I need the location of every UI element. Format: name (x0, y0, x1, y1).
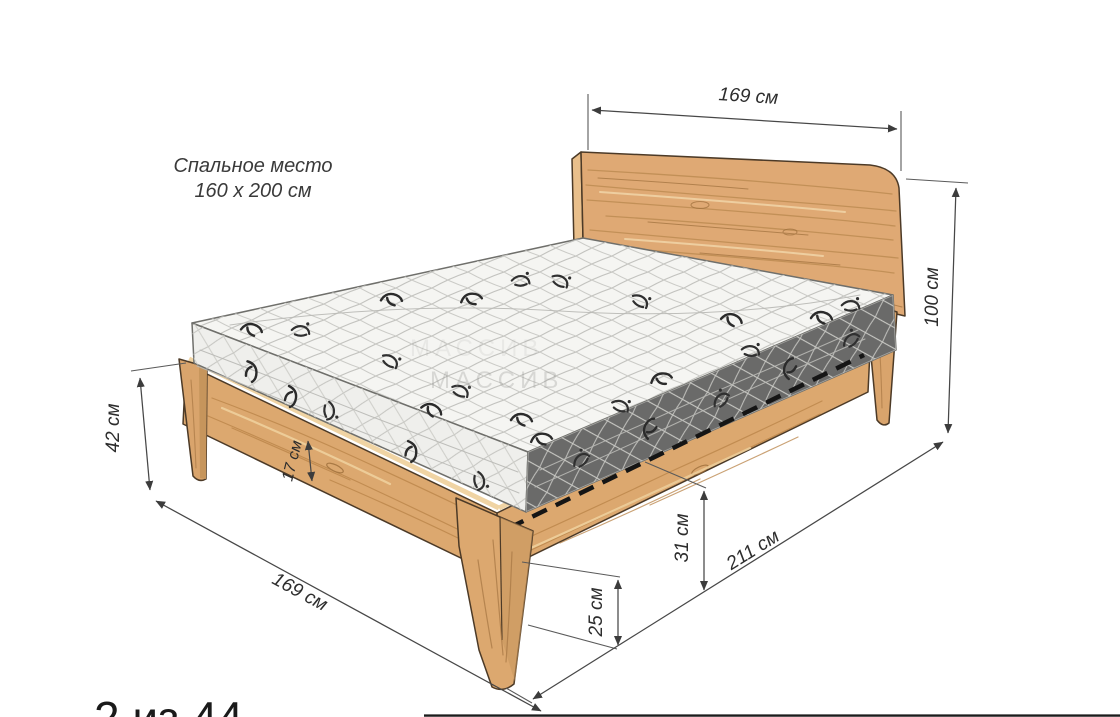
sleeping-area-size: 160 x 200 см (194, 180, 311, 202)
watermark-text-faint: МАССИВ (410, 335, 543, 362)
dim-label-under-bed-clearance: 25 см (586, 588, 607, 638)
dim-label-slat-level-height: 31 см (672, 514, 693, 563)
bed-diagram-page: МАССИВ МАССИВ 169 см 100 с (0, 0, 1120, 717)
front-corner-leg (456, 498, 533, 689)
page-indicator: 2 из 44 (94, 692, 243, 717)
sleeping-area-title: Спальное место (173, 155, 332, 177)
dim-label-floor-width: 169 см (268, 569, 330, 616)
dim-label-headboard-width: 169 см (718, 84, 779, 109)
diagram-svg: МАССИВ МАССИВ 169 см 100 с (0, 0, 1120, 717)
dim-label-frame-side-height: 42 см (103, 404, 124, 453)
dim-frame-side-height: 42 см (103, 363, 186, 490)
watermark-text: МАССИВ (430, 367, 563, 394)
dim-label-total-height: 100 см (922, 267, 943, 327)
dim-under-bed-clearance: 25 см (522, 562, 620, 649)
dim-label-floor-length: 211 см (722, 526, 783, 575)
dim-total-height: 100 см (906, 179, 968, 433)
bed-drawing: МАССИВ МАССИВ (179, 152, 905, 689)
